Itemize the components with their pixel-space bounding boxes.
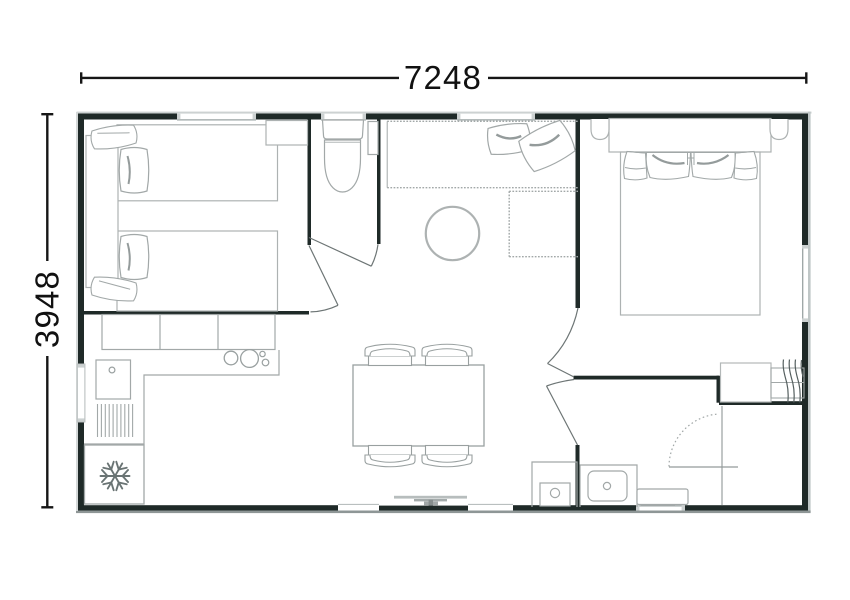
svg-text:3948: 3948: [29, 270, 66, 348]
svg-text:7248: 7248: [404, 59, 482, 96]
